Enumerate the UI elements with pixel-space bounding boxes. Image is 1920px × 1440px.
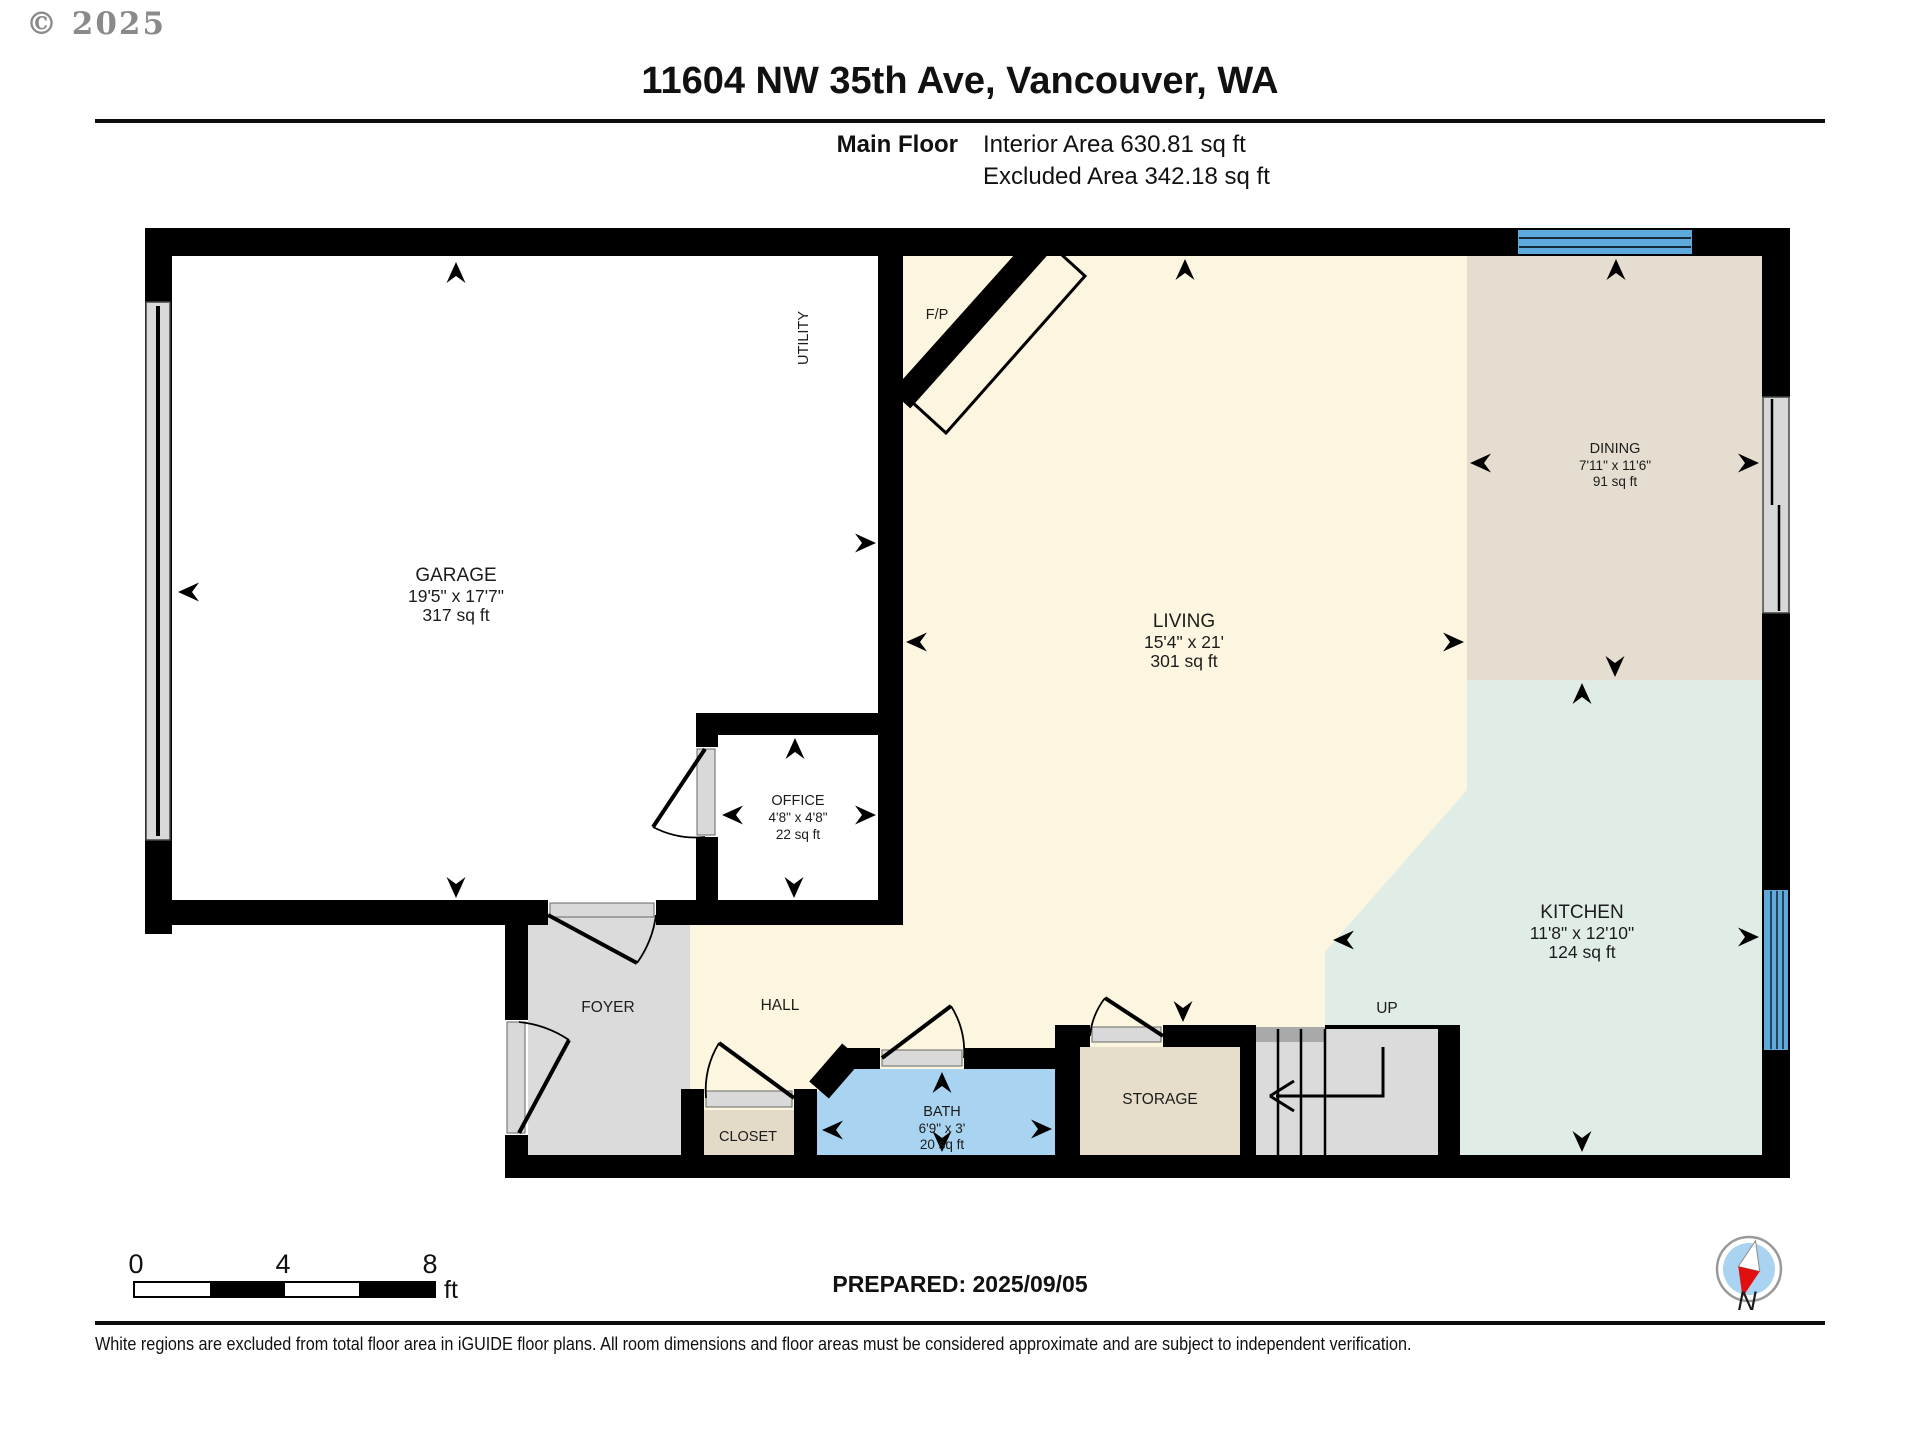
- stairs-up-label: UP: [1376, 1000, 1398, 1017]
- living-dims: 15'4" x 21': [1144, 632, 1224, 652]
- wall-office-left-upper: [696, 713, 718, 747]
- closet-door-threshold: [706, 1091, 792, 1107]
- dining-dims: 7'11" x 11'6": [1579, 458, 1651, 473]
- bath-dims: 6'9" x 3': [919, 1121, 966, 1136]
- stairs-area: [1256, 1029, 1438, 1155]
- wall-closet-right: [794, 1089, 817, 1155]
- garage-label: GARAGE: [415, 565, 496, 586]
- office-sqft: 22 sq ft: [776, 827, 821, 842]
- wall-bath-right: [1055, 1025, 1080, 1155]
- stairs-first-tread: [1256, 1027, 1325, 1042]
- kitchen-dims: 11'8" x 12'10": [1530, 923, 1634, 943]
- garage-dims: 19'5" x 17'7": [408, 586, 504, 606]
- bath-door-threshold: [882, 1050, 962, 1066]
- room-fills: [528, 256, 1762, 1155]
- living-label: LIVING: [1153, 611, 1215, 632]
- wall-bath-top-left: [845, 1048, 880, 1069]
- compass: N: [1712, 1233, 1786, 1311]
- kitchen-sqft: 124 sq ft: [1548, 942, 1615, 962]
- wall-storage-top-left: [1080, 1025, 1090, 1047]
- wall-right-upper: [1762, 228, 1790, 397]
- prepared-date: PREPARED: 2025/09/05: [0, 1271, 1920, 1298]
- office-door-threshold: [697, 749, 715, 835]
- foyer-door-threshold: [550, 903, 654, 917]
- garage-door-line: [156, 306, 160, 836]
- dining-sliding-door: [1763, 397, 1789, 613]
- wall-right-lower: [1762, 1051, 1790, 1178]
- compass-north-label: N: [1737, 1286, 1757, 1311]
- wall-office-top: [696, 713, 903, 735]
- storage-label: STORAGE: [1122, 1091, 1198, 1108]
- living-sqft: 301 sq ft: [1150, 651, 1217, 671]
- office-dims: 4'8" x 4'8": [768, 810, 827, 825]
- footer-divider: [95, 1321, 1825, 1325]
- wall-garage-bottom-left: [145, 900, 548, 925]
- hall-label: HALL: [761, 997, 800, 1014]
- dining-label: DINING: [1590, 441, 1641, 457]
- stairs-landing-edge: [1325, 1025, 1438, 1029]
- wall-closet-left: [681, 1089, 704, 1155]
- disclaimer-text: White regions are excluded from total fl…: [95, 1334, 1412, 1355]
- foyer-label: FOYER: [581, 999, 634, 1016]
- utility-label: UTILITY: [796, 311, 812, 365]
- floorplan-page: © 2025 11604 NW 35th Ave, Vancouver, WA …: [0, 0, 1920, 1440]
- kitchen-window: [1763, 889, 1789, 1051]
- office-label: OFFICE: [771, 793, 824, 809]
- foyer-area: [528, 915, 690, 1155]
- bath-sqft: 20 sq ft: [920, 1137, 965, 1152]
- fireplace-label: F/P: [926, 307, 949, 323]
- closet-label: CLOSET: [719, 1129, 777, 1145]
- wall-stairs-right: [1438, 1025, 1460, 1155]
- wall-right-middle: [1762, 613, 1790, 889]
- wall-foyer-left-upper: [505, 900, 528, 1020]
- bath-label: BATH: [923, 1104, 961, 1120]
- garage-sqft: 317 sq ft: [422, 605, 489, 625]
- entry-door-threshold: [507, 1022, 525, 1133]
- dining-window-top: [1517, 229, 1693, 255]
- wall-office-left-lower: [696, 837, 718, 925]
- floorplan-drawing: GARAGE 19'5" x 17'7" 317 sq ft UTILITY F…: [0, 0, 1920, 1440]
- wall-interior-vertical: [878, 228, 903, 925]
- dining-sqft: 91 sq ft: [1593, 474, 1638, 489]
- kitchen-label: KITCHEN: [1540, 902, 1623, 923]
- wall-storage-right: [1240, 1025, 1256, 1155]
- wall-bottom: [505, 1155, 1790, 1178]
- wall-garage-bottom-right: [656, 900, 903, 925]
